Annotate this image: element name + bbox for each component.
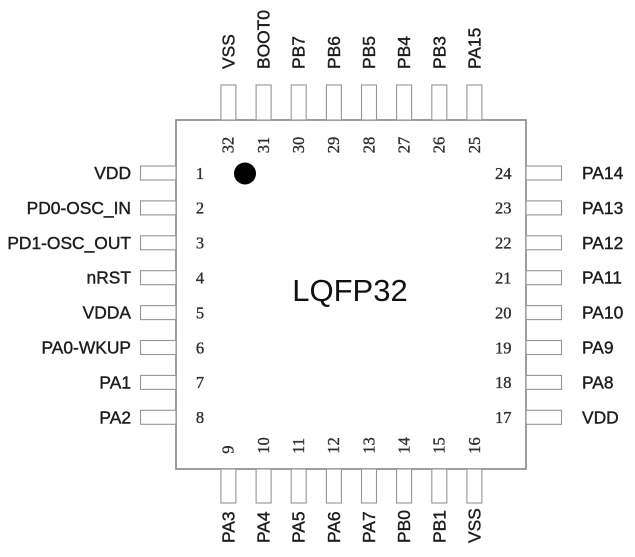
svg-text:PA8: PA8 (582, 372, 614, 392)
svg-text:30: 30 (289, 137, 308, 154)
svg-text:6: 6 (196, 338, 204, 357)
svg-text:PA11: PA11 (582, 268, 622, 288)
svg-text:VDD: VDD (582, 407, 619, 427)
svg-text:9: 9 (219, 446, 238, 454)
svg-text:PB5: PB5 (359, 36, 379, 69)
svg-text:25: 25 (465, 137, 484, 154)
svg-text:PB6: PB6 (324, 36, 344, 69)
svg-text:nRST: nRST (87, 268, 132, 288)
svg-text:PA5: PA5 (289, 511, 309, 543)
svg-text:28: 28 (359, 137, 378, 154)
svg-text:19: 19 (495, 338, 512, 357)
svg-text:22: 22 (495, 234, 512, 253)
svg-text:18: 18 (495, 373, 512, 392)
svg-text:PA9: PA9 (582, 338, 614, 358)
svg-text:31: 31 (254, 137, 273, 154)
svg-text:16: 16 (465, 437, 484, 454)
svg-text:VDD: VDD (94, 163, 131, 183)
svg-text:BOOT0: BOOT0 (254, 10, 274, 69)
svg-text:5: 5 (196, 303, 204, 322)
svg-text:PA4: PA4 (254, 511, 274, 543)
svg-text:24: 24 (495, 164, 512, 183)
svg-text:13: 13 (359, 437, 378, 454)
svg-text:PA3: PA3 (218, 511, 238, 543)
svg-text:11: 11 (289, 438, 308, 454)
svg-text:PA7: PA7 (359, 511, 379, 543)
svg-text:29: 29 (324, 137, 343, 154)
svg-text:VSS: VSS (218, 34, 238, 69)
svg-text:17: 17 (495, 408, 512, 427)
svg-text:32: 32 (219, 137, 238, 154)
svg-text:3: 3 (196, 234, 204, 253)
svg-text:PA6: PA6 (324, 511, 344, 543)
svg-text:12: 12 (324, 437, 343, 454)
svg-text:1: 1 (196, 164, 204, 183)
svg-text:PA15: PA15 (464, 28, 484, 69)
svg-text:PB7: PB7 (289, 36, 309, 69)
svg-text:PD1-OSC_OUT: PD1-OSC_OUT (7, 233, 131, 253)
svg-text:PA0-WKUP: PA0-WKUP (41, 338, 131, 358)
svg-text:PA14: PA14 (582, 163, 624, 183)
svg-text:10: 10 (254, 437, 273, 454)
svg-text:PB3: PB3 (429, 36, 449, 69)
svg-text:PA2: PA2 (99, 407, 131, 427)
svg-text:PB4: PB4 (394, 36, 414, 69)
svg-text:27: 27 (394, 137, 413, 154)
svg-text:4: 4 (196, 269, 204, 288)
svg-text:PA10: PA10 (582, 303, 623, 323)
svg-text:2: 2 (196, 199, 204, 218)
svg-text:VSS: VSS (464, 508, 484, 543)
svg-text:7: 7 (196, 373, 204, 392)
svg-text:LQFP32: LQFP32 (292, 273, 407, 308)
svg-text:26: 26 (430, 137, 449, 154)
svg-text:15: 15 (430, 437, 449, 454)
svg-text:PA13: PA13 (582, 198, 623, 218)
svg-text:23: 23 (495, 199, 512, 218)
svg-text:PD0-OSC_IN: PD0-OSC_IN (27, 198, 131, 218)
svg-text:PA12: PA12 (582, 233, 623, 253)
svg-text:PB0: PB0 (394, 510, 414, 543)
svg-text:14: 14 (394, 437, 413, 454)
svg-text:20: 20 (495, 303, 512, 322)
svg-text:8: 8 (196, 408, 204, 427)
svg-text:PB1: PB1 (429, 510, 449, 543)
svg-text:PA1: PA1 (99, 372, 131, 392)
svg-text:VDDA: VDDA (83, 303, 132, 323)
svg-text:21: 21 (495, 269, 512, 288)
